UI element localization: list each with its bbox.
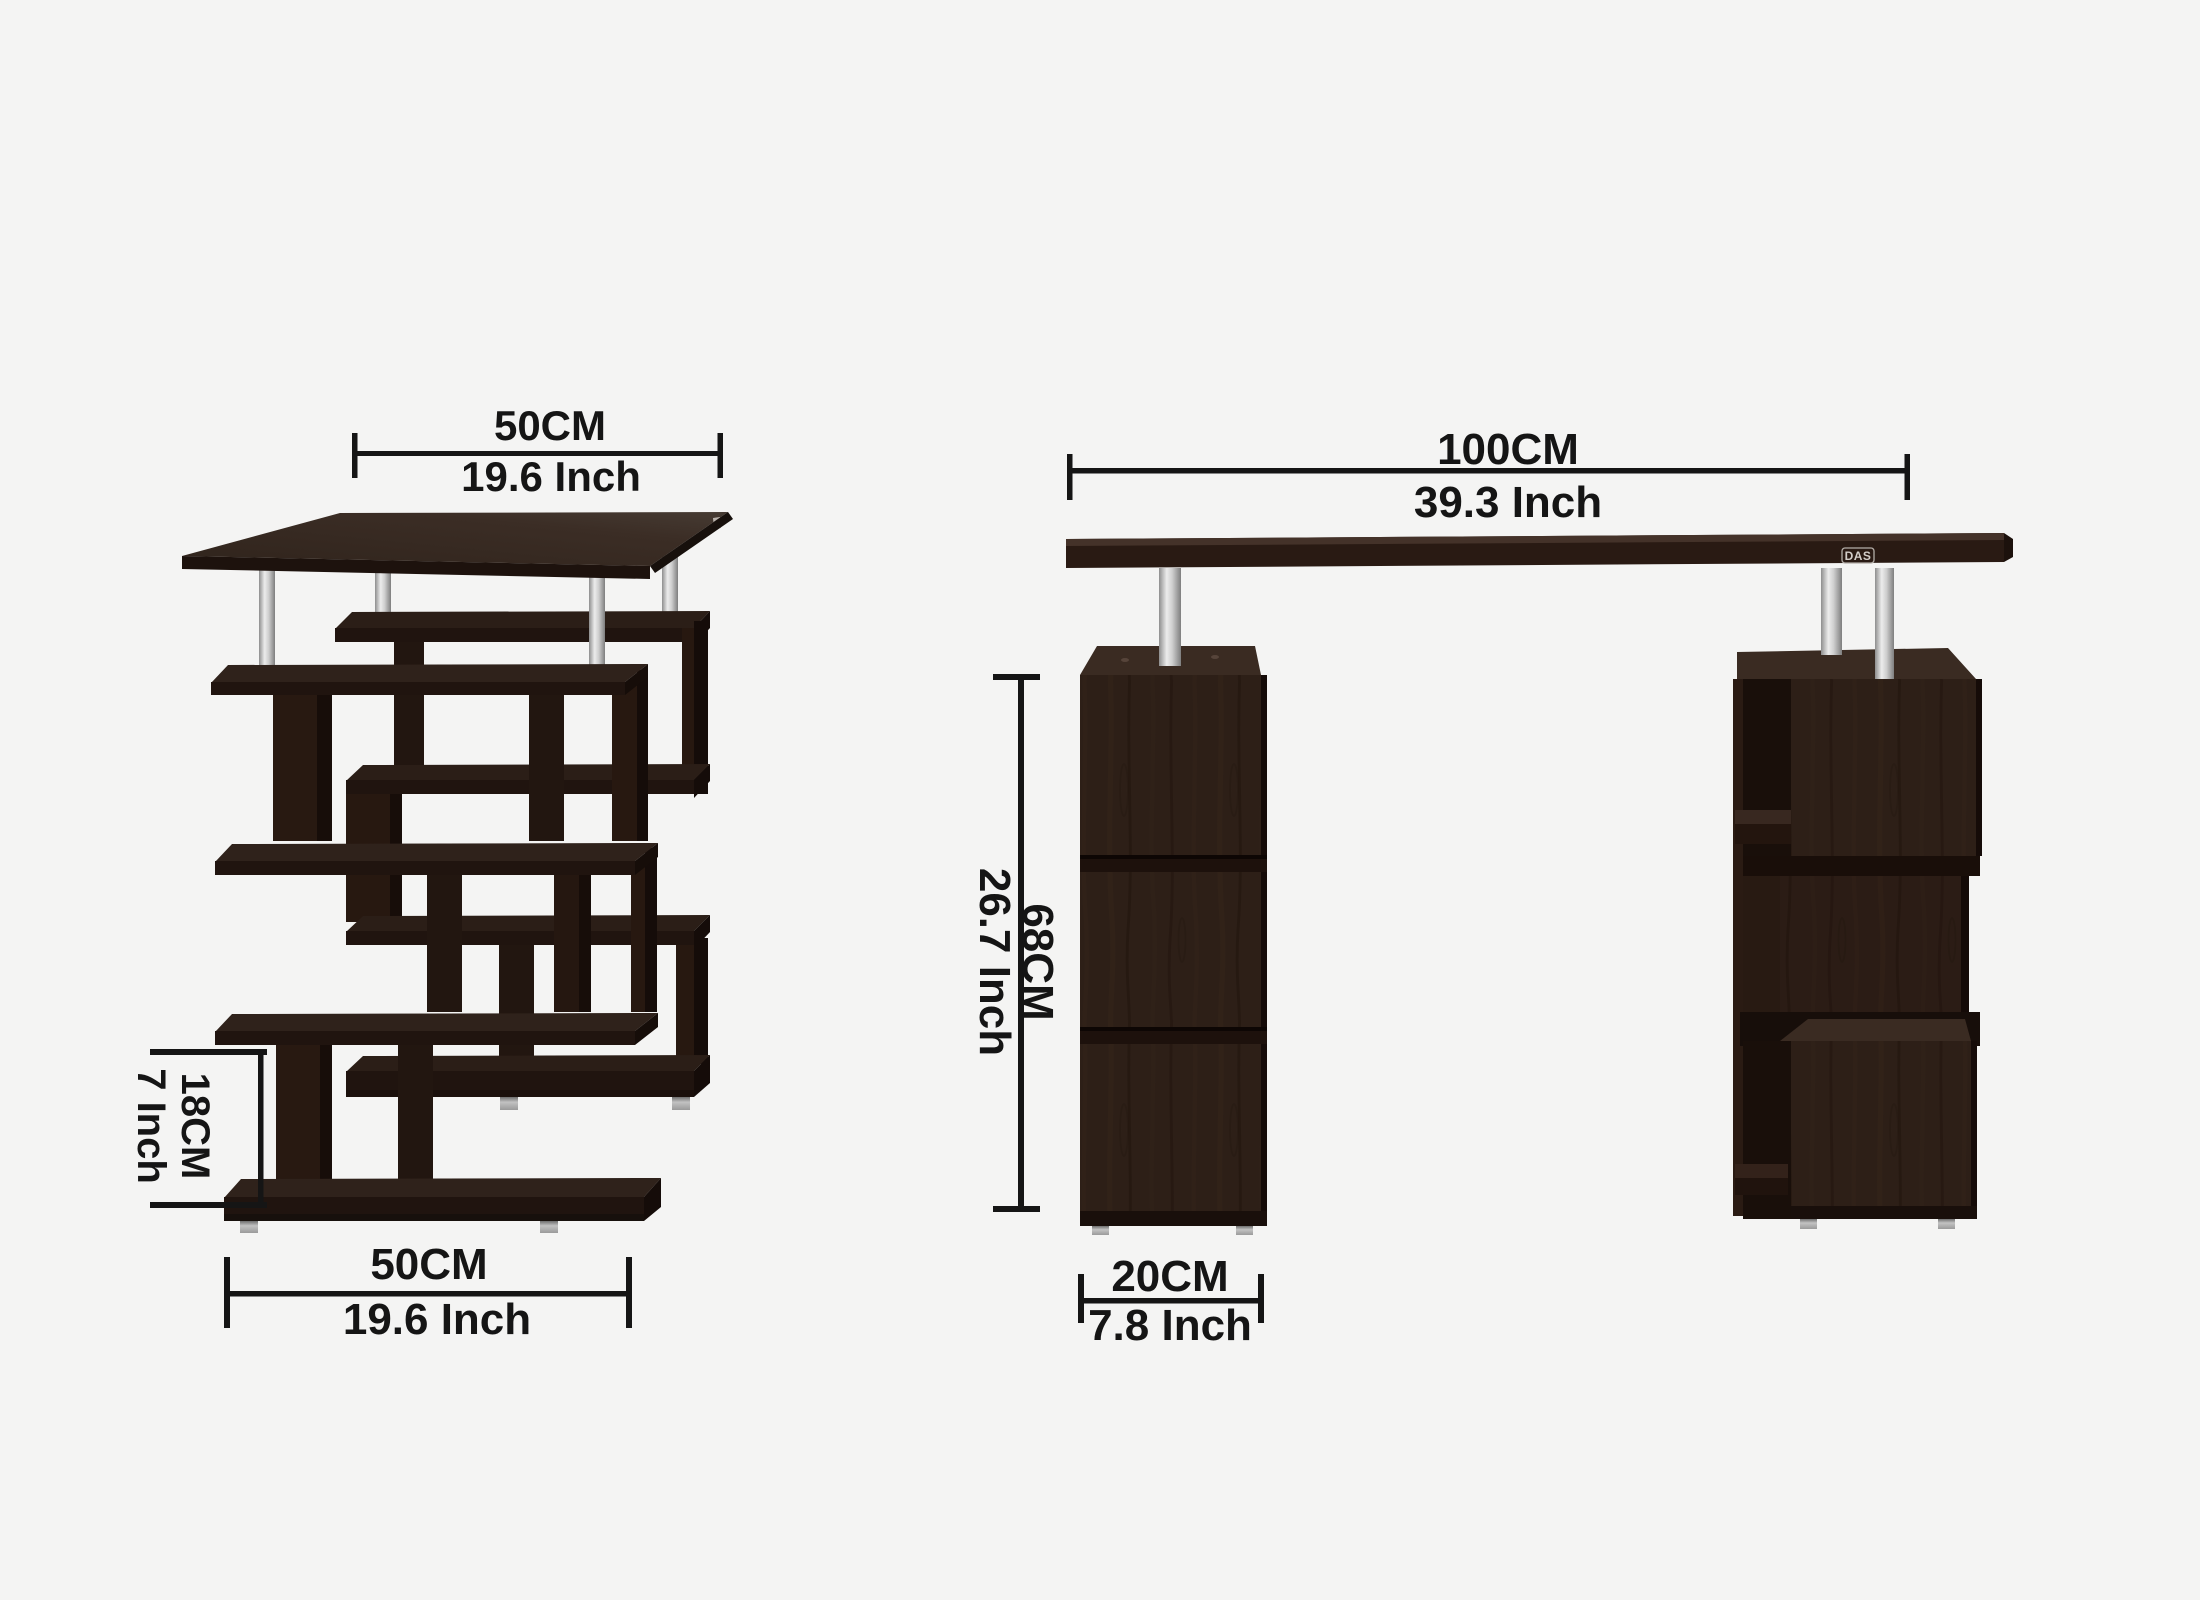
svg-text:19.6 Inch: 19.6 Inch [343,1295,531,1344]
svg-text:50CM: 50CM [370,1240,487,1289]
svg-text:39.3 Inch: 39.3 Inch [1414,478,1602,527]
svg-text:26.7 Inch: 26.7 Inch [970,868,1019,1056]
svg-text:19.6 Inch: 19.6 Inch [461,453,641,500]
svg-text:68CM: 68CM [1013,903,1062,1020]
svg-text:7 Inch: 7 Inch [129,1068,173,1184]
svg-text:18CM: 18CM [173,1073,217,1180]
svg-text:50CM: 50CM [494,402,606,449]
svg-text:DAS: DAS [1845,549,1872,563]
svg-text:20CM: 20CM [1111,1252,1228,1301]
svg-text:7.8 Inch: 7.8 Inch [1088,1301,1252,1350]
svg-text:100CM: 100CM [1437,425,1579,474]
